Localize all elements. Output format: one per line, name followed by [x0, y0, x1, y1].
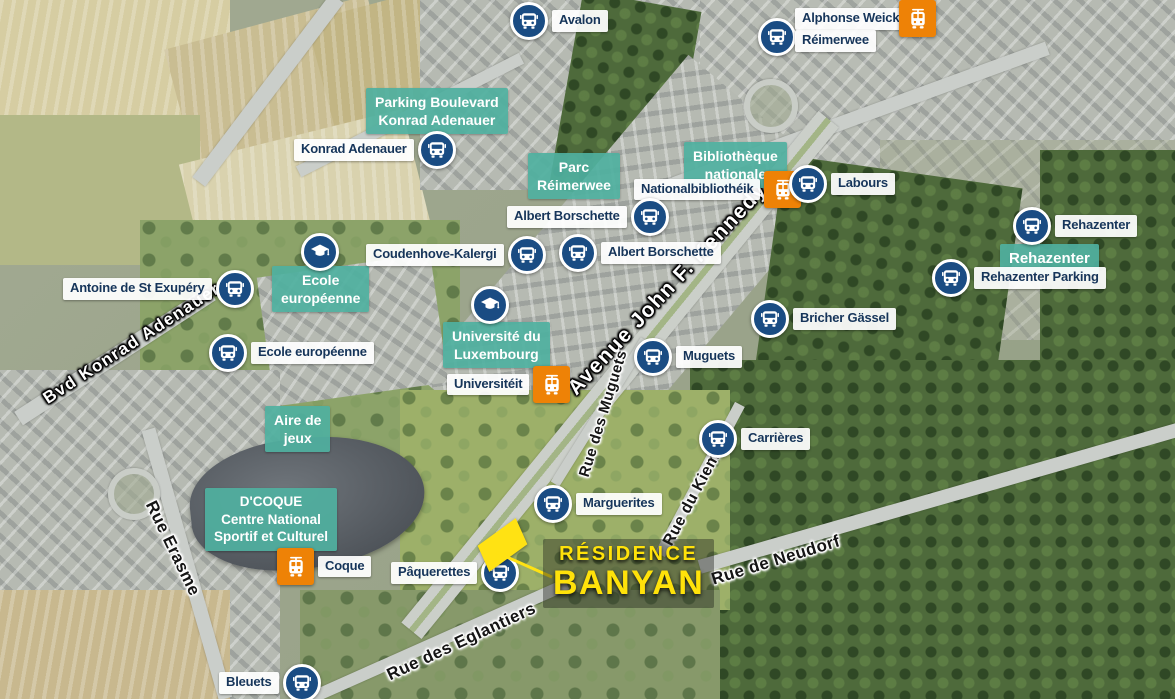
bus-stop-coudenhove-kalergi[interactable]: Coudenhove-Kalergi — [366, 236, 546, 274]
stop-label: Pâquerettes — [391, 562, 477, 584]
bus-icon — [418, 131, 456, 169]
graduation-cap-icon — [301, 233, 339, 271]
terrain-forest-bottom — [690, 360, 1175, 699]
poi-dcoque: D'COQUE Centre National Sportif et Cultu… — [205, 488, 337, 551]
poi-line: Bibliothèque — [693, 147, 778, 165]
bus-icon — [789, 165, 827, 203]
map-canvas[interactable]: Avenue John F. Kennedy Bvd Konrad Adenau… — [0, 0, 1175, 699]
tram-icon — [277, 548, 314, 585]
bus-icon — [634, 338, 672, 376]
bus-stop-carrieres[interactable]: Carrières — [699, 420, 810, 458]
bus-stop-bleuets[interactable]: Bleuets — [219, 664, 321, 699]
bus-stop-rehazenter-parking[interactable]: Rehazenter Parking — [932, 259, 1106, 297]
tram-icon — [533, 366, 570, 403]
poi-aire-de-jeux: Aire de jeux — [265, 406, 330, 452]
poi-line: Centre National — [214, 511, 328, 529]
stop-label: Marguerites — [576, 493, 662, 515]
stop-label: Antoine de St Exupéry — [63, 278, 212, 300]
poi-universite: Université du Luxembourg — [443, 322, 550, 368]
bus-stop-antoine[interactable]: Antoine de St Exupéry — [63, 270, 254, 308]
stop-label: Coque — [318, 556, 371, 578]
stop-label: Avalon — [552, 10, 608, 32]
stop-label: Rehazenter — [1055, 215, 1137, 237]
graduation-cap-icon — [471, 286, 509, 324]
stop-label: Réimerwee — [795, 30, 876, 52]
poi-line: Parc — [537, 158, 611, 176]
poi-line: européenne — [281, 289, 360, 307]
stop-label: Labours — [831, 173, 895, 195]
poi-line: Ecole — [281, 271, 360, 289]
poi-line: D'COQUE — [214, 493, 328, 511]
stop-label: Bleuets — [219, 672, 279, 694]
poi-parking-adenauer: Parking Boulevard Konrad Adenauer — [366, 88, 508, 134]
stop-label: Ecole européenne — [251, 342, 374, 364]
residence-line-2: BANYAN — [553, 566, 704, 601]
bus-stop-rehazenter[interactable]: Rehazenter — [1013, 207, 1137, 245]
poi-line: Réimerwee — [537, 176, 611, 194]
residence-banyan-label: RÉSIDENCE BANYAN — [543, 539, 714, 608]
bus-icon — [932, 259, 970, 297]
poi-line: Sportif et Culturel — [214, 528, 328, 546]
bus-icon — [209, 334, 247, 372]
bus-stop-konrad-adenauer[interactable]: Konrad Adenauer — [294, 131, 456, 169]
bus-icon — [699, 420, 737, 458]
bus-icon — [631, 198, 669, 236]
poi-parc-reimerwee: Parc Réimerwee — [528, 153, 620, 199]
bus-icon — [534, 485, 572, 523]
poi-line: Konrad Adenauer — [375, 111, 499, 129]
bus-stop-albert-borschette-2[interactable]: Albert Borschette — [559, 234, 721, 272]
stop-label: Konrad Adenauer — [294, 139, 414, 161]
bus-stop-labours[interactable]: Labours — [789, 165, 895, 203]
poi-line: Parking Boulevard — [375, 93, 499, 111]
bus-icon — [508, 236, 546, 274]
bus-icon — [559, 234, 597, 272]
stop-label: Albert Borschette — [601, 242, 721, 264]
bus-icon — [216, 270, 254, 308]
stop-label: Rehazenter Parking — [974, 267, 1106, 289]
residence-line-1: RÉSIDENCE — [553, 543, 704, 566]
poi-line: Aire de — [274, 411, 321, 429]
stop-label: Universitéit — [447, 374, 529, 396]
bus-stop-avalon[interactable]: Avalon — [510, 2, 608, 40]
roundabout-top — [744, 79, 798, 133]
bus-stop-marguerites[interactable]: Marguerites — [534, 485, 662, 523]
poi-ecole-europeenne: Ecole européenne — [272, 266, 369, 312]
stop-label: Muguets — [676, 346, 742, 368]
stop-label: Coudenhove-Kalergi — [366, 244, 504, 266]
poi-line: Université du — [452, 327, 541, 345]
bus-stop-bricher-gassel[interactable]: Bricher Gässel — [751, 300, 896, 338]
stop-label: Carrières — [741, 428, 810, 450]
bus-stop-albert-borschette-1[interactable]: Albert Borschette — [507, 198, 669, 236]
bus-icon — [1013, 207, 1051, 245]
poi-line: jeux — [274, 429, 321, 447]
bus-icon — [751, 300, 789, 338]
tram-stop-universiteit[interactable]: Universitéit — [447, 366, 570, 403]
poi-line: Luxembourg — [452, 345, 541, 363]
stop-label: Albert Borschette — [507, 206, 627, 228]
bus-stop-muguets[interactable]: Muguets — [634, 338, 742, 376]
tram-stop-coque[interactable]: Coque — [277, 548, 371, 585]
bus-stop-ecole-europeenne[interactable]: Ecole européenne — [209, 334, 374, 372]
bus-icon — [510, 2, 548, 40]
tram-icon — [899, 0, 936, 37]
bus-icon — [283, 664, 321, 699]
bus-icon — [758, 18, 796, 56]
stop-label: Bricher Gässel — [793, 308, 896, 330]
